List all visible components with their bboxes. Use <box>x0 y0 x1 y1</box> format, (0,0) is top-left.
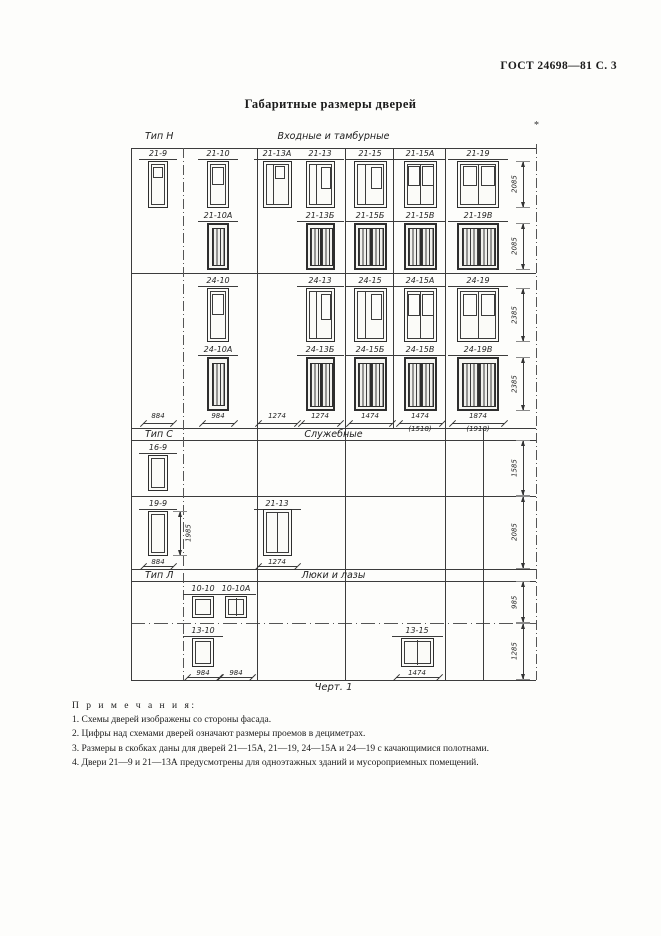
note-item: 3. Размеры в скобках даны для дверей 21—… <box>72 742 600 756</box>
dimension-line <box>220 677 252 678</box>
dimension-value: 2085 <box>509 223 520 270</box>
door-detail <box>310 363 322 407</box>
door-detail <box>151 458 165 488</box>
door-detail <box>212 228 226 265</box>
door-diagram <box>207 357 229 411</box>
door-detail <box>478 291 479 339</box>
door-diagram <box>354 161 387 208</box>
dimension-value: 884 <box>128 412 188 420</box>
door-diagram <box>354 288 387 342</box>
door-diagram <box>457 288 499 342</box>
door-diagram <box>263 161 292 208</box>
door-detail <box>212 363 226 406</box>
door-detail <box>481 294 495 317</box>
door-detail <box>153 167 163 178</box>
door-label: 21-19В <box>448 211 508 222</box>
dimension-value: 1874 <box>448 412 508 420</box>
notes-block: П р и м е ч а н и я: 1. Схемы дверей изо… <box>72 699 600 770</box>
grid-line <box>393 148 394 428</box>
door-label: 21-15А <box>395 149 446 160</box>
door-detail <box>151 514 165 553</box>
door-diagram <box>354 357 387 411</box>
section-group-label: Служебные <box>131 429 536 440</box>
door-detail <box>321 294 331 319</box>
dimension-line <box>143 423 173 424</box>
dimension-line <box>523 288 524 342</box>
door-detail <box>421 363 434 407</box>
door-diagram <box>457 223 499 270</box>
door-label: 21-13 <box>297 149 344 160</box>
dimension-line <box>396 677 439 678</box>
door-detail <box>478 164 479 205</box>
dimension-line <box>523 440 524 496</box>
door-detail <box>321 228 333 266</box>
door-detail <box>236 598 237 616</box>
door-label: 10-10А <box>216 584 256 595</box>
dimension-line <box>399 423 442 424</box>
document-code: ГОСТ 24698—81 С. 3 <box>500 60 617 72</box>
door-diagram <box>401 638 434 667</box>
door-label: 24-10 <box>198 276 238 287</box>
door-diagram <box>148 455 168 491</box>
dimension-line <box>301 423 340 424</box>
dimension-value: 1274 <box>247 558 307 566</box>
dimension-line <box>452 423 504 424</box>
door-detail <box>408 294 419 317</box>
notes-heading: П р и м е ч а н и я: <box>72 699 600 713</box>
door-label: 24-10А <box>198 345 238 356</box>
door-label: 21-15Б <box>345 211 396 222</box>
door-detail <box>421 228 434 266</box>
door-detail <box>371 228 384 266</box>
door-detail <box>358 363 371 407</box>
grid-line <box>131 680 536 681</box>
door-detail <box>422 166 433 186</box>
dimension-value: 884 <box>128 558 188 566</box>
figure-caption: Черт. 1 <box>131 682 536 693</box>
door-label: 21-10 <box>198 149 238 160</box>
door-diagram <box>207 161 229 208</box>
door-label: 21-19 <box>448 149 508 160</box>
section-group-label: Люки и лазы <box>131 570 536 581</box>
door-diagram <box>404 223 437 270</box>
door-detail <box>321 167 331 189</box>
door-detail <box>195 641 211 664</box>
door-label: 21-10А <box>198 211 238 222</box>
door-label: 24-15А <box>395 276 446 287</box>
note-item: 1. Схемы дверей изображены со стороны фа… <box>72 713 600 727</box>
door-label: 24-19В <box>448 345 508 356</box>
dimension-line <box>523 357 524 411</box>
door-diagram <box>306 161 335 208</box>
door-detail <box>212 167 224 185</box>
door-label: 13-15 <box>392 626 443 637</box>
door-detail <box>275 166 286 179</box>
door-diagram <box>207 288 229 342</box>
door-detail <box>212 294 224 315</box>
door-label: 24-15Б <box>345 345 396 356</box>
dimension-line <box>349 423 392 424</box>
door-label: 21-15В <box>395 211 446 222</box>
door-diagram <box>457 161 499 208</box>
door-detail <box>479 228 496 266</box>
dimension-line <box>523 496 524 569</box>
door-label: 21-13А <box>254 149 301 160</box>
dimension-line <box>258 566 297 567</box>
door-detail <box>316 164 317 205</box>
door-diagram <box>225 596 247 618</box>
dimension-value: 1585 <box>509 440 520 496</box>
dimension-value: 2385 <box>509 288 520 342</box>
door-detail <box>481 166 495 186</box>
document-page: ГОСТ 24698—81 С. 3 Габаритные размеры дв… <box>0 0 661 936</box>
door-diagram <box>306 288 335 342</box>
door-diagram <box>404 288 437 342</box>
door-detail <box>321 363 333 407</box>
door-diagram <box>306 223 335 270</box>
door-label: 21-15 <box>345 149 396 160</box>
grid-line-dashdot <box>536 144 537 680</box>
dimension-value: 1474 <box>390 412 450 420</box>
door-diagram <box>404 357 437 411</box>
door-diagram <box>148 511 168 556</box>
grid-line <box>131 440 536 441</box>
door-detail <box>371 294 382 319</box>
dimension-value: 984 <box>188 412 248 420</box>
door-label: 24-15 <box>345 276 396 287</box>
door-detail <box>420 291 421 339</box>
door-detail <box>408 166 419 186</box>
dimension-value: 1285 <box>509 623 520 680</box>
door-label: 13-10 <box>183 626 223 637</box>
door-label: 24-13Б <box>297 345 344 356</box>
door-label: 24-13 <box>297 276 344 287</box>
door-diagram <box>457 357 499 411</box>
door-detail <box>371 363 384 407</box>
door-detail <box>195 599 211 615</box>
grid-line <box>483 428 484 680</box>
dimension-value: 985 <box>509 581 520 623</box>
door-detail <box>277 512 278 553</box>
door-label: 21-9 <box>139 149 177 160</box>
grid-line-dashed <box>131 623 536 624</box>
door-detail <box>365 291 366 339</box>
door-detail <box>365 164 366 205</box>
door-label: 24-19 <box>448 276 508 287</box>
door-detail <box>422 294 433 317</box>
dimension-line <box>523 623 524 680</box>
section-group-label: Входные и тамбурные <box>131 131 536 142</box>
door-diagram <box>306 357 335 411</box>
door-diagram <box>404 161 437 208</box>
dimension-line <box>143 566 173 567</box>
door-detail <box>463 294 477 317</box>
door-detail <box>273 164 274 205</box>
page-title: Габаритные размеры дверей <box>0 97 661 112</box>
door-detail <box>479 363 496 407</box>
dimension-line <box>523 223 524 270</box>
note-item: 2. Цифры над схемами дверей означают раз… <box>72 727 600 741</box>
door-detail <box>420 164 421 205</box>
door-diagram <box>192 596 214 618</box>
door-label: 21-13Б <box>297 211 344 222</box>
door-detail <box>463 166 477 186</box>
door-detail <box>316 291 317 339</box>
door-diagram <box>207 223 229 270</box>
door-detail <box>417 640 418 665</box>
grid-line <box>131 273 536 274</box>
dimension-value: 2385 <box>509 357 520 411</box>
note-item: 4. Двери 21—9 и 21—13А предусмотрены для… <box>72 756 600 770</box>
dimension-tick <box>170 420 177 427</box>
dimension-value: 1474 <box>387 669 447 677</box>
door-diagram <box>354 223 387 270</box>
door-dimensions-diagram: Тип НВходные и тамбурные21-921-1021-13А2… <box>131 128 545 684</box>
dimension-line <box>187 677 219 678</box>
door-detail <box>462 363 479 407</box>
door-label: 19-9 <box>139 499 177 510</box>
dimension-value: 2085 <box>509 496 520 569</box>
door-diagram <box>192 638 214 667</box>
door-detail <box>358 228 371 266</box>
grid-line <box>131 496 536 497</box>
door-label: 24-15В <box>395 345 446 356</box>
door-detail <box>408 228 421 266</box>
dimension-line <box>202 423 234 424</box>
door-diagram <box>263 509 292 556</box>
dimension-value: 1985 <box>183 511 194 556</box>
dimension-line <box>258 423 297 424</box>
dimension-value: 2085 <box>509 161 520 208</box>
grid-line <box>131 581 536 582</box>
door-detail <box>462 228 479 266</box>
door-detail <box>408 363 421 407</box>
dimension-value: 984 <box>206 669 266 677</box>
dimension-tick <box>231 420 238 427</box>
door-detail <box>310 228 322 266</box>
door-label: 16-9 <box>139 443 177 454</box>
dimension-line <box>523 161 524 208</box>
door-diagram <box>148 161 168 208</box>
door-detail <box>371 167 382 189</box>
